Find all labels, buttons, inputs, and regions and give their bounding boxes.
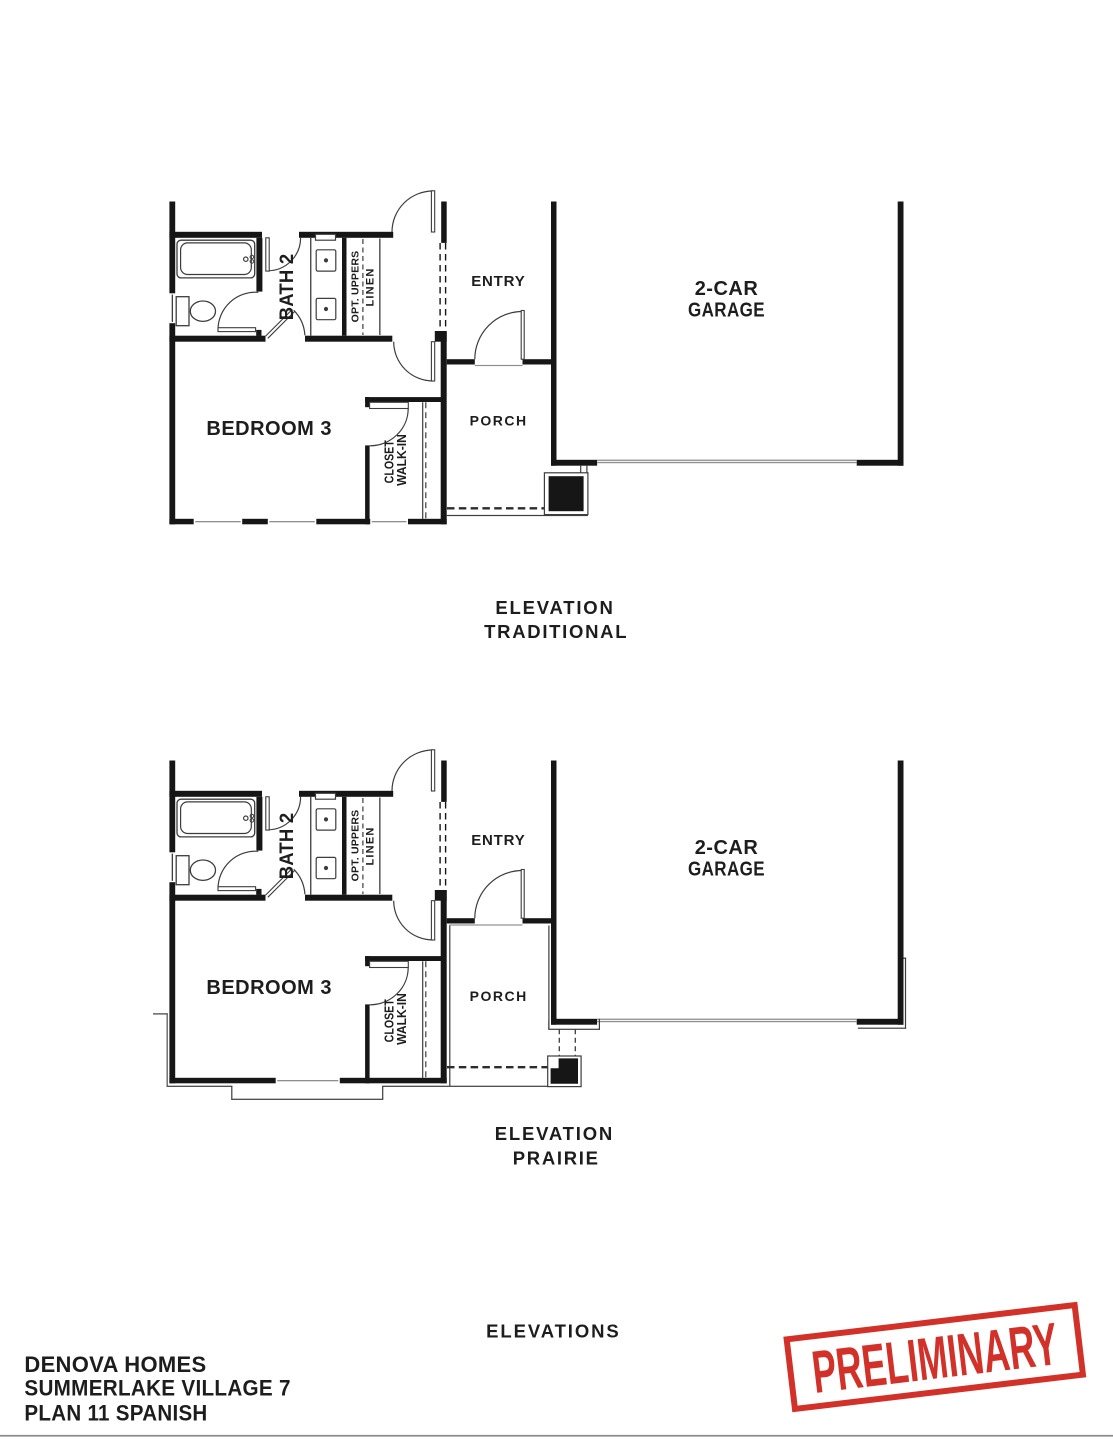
svg-text:CLOSET: CLOSET [383, 999, 397, 1042]
svg-text:GARAGE: GARAGE [688, 298, 765, 321]
svg-text:PORCH: PORCH [470, 412, 528, 428]
svg-text:SUMMERLAKE VILLAGE 7: SUMMERLAKE VILLAGE 7 [24, 1376, 290, 1401]
svg-text:ENTRY: ENTRY [471, 273, 525, 290]
svg-text:LINEN: LINEN [365, 268, 377, 307]
svg-text:CLOSET: CLOSET [383, 440, 397, 483]
svg-text:OPT. UPPERS: OPT. UPPERS [349, 251, 361, 323]
svg-text:BATH 2: BATH 2 [277, 813, 299, 880]
svg-text:PRELIMINARY: PRELIMINARY [809, 1311, 1062, 1406]
svg-text:ELEVATION: ELEVATION [495, 597, 614, 618]
svg-text:BEDROOM 3: BEDROOM 3 [206, 977, 332, 999]
svg-text:GARAGE: GARAGE [688, 857, 765, 880]
svg-text:ELEVATION: ELEVATION [495, 1123, 614, 1144]
svg-text:TRADITIONAL: TRADITIONAL [484, 621, 628, 642]
svg-text:OPT. UPPERS: OPT. UPPERS [349, 810, 361, 882]
svg-text:WALK-IN: WALK-IN [395, 434, 409, 486]
svg-text:BEDROOM 3: BEDROOM 3 [206, 418, 332, 440]
svg-text:2-CAR: 2-CAR [695, 278, 759, 300]
svg-text:WALK-IN: WALK-IN [395, 993, 409, 1045]
svg-text:PORCH: PORCH [470, 988, 528, 1004]
svg-text:ELEVATIONS: ELEVATIONS [486, 1320, 620, 1341]
svg-text:PRAIRIE: PRAIRIE [513, 1147, 600, 1168]
svg-text:DENOVA HOMES: DENOVA HOMES [24, 1352, 206, 1377]
svg-text:LINEN: LINEN [365, 827, 377, 866]
svg-text:ENTRY: ENTRY [471, 832, 525, 849]
svg-text:2-CAR: 2-CAR [695, 837, 759, 859]
svg-text:PLAN 11 SPANISH: PLAN 11 SPANISH [24, 1401, 207, 1426]
svg-text:BATH 2: BATH 2 [277, 254, 299, 321]
